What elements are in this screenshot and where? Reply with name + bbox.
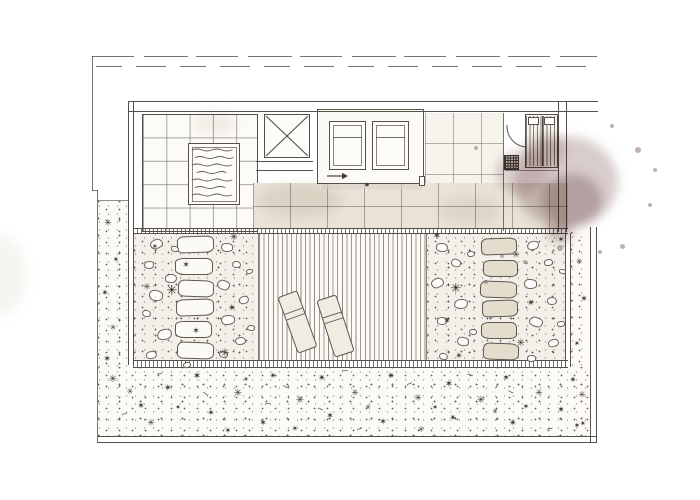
- grass-squiggle-symbol: ~: [341, 368, 349, 377]
- pebble: [141, 309, 152, 318]
- plant-symbol: ✶: [445, 380, 453, 390]
- pebble: [528, 315, 544, 328]
- lounger-backrest-line: [287, 313, 305, 321]
- plant-symbol: ✶: [523, 403, 530, 411]
- pebble: [235, 337, 246, 345]
- plant-symbol: ✴: [574, 340, 581, 348]
- plant-symbol: ✶: [193, 372, 201, 382]
- plant-symbol: ✳: [414, 395, 422, 404]
- plant-symbol: ✳: [451, 283, 462, 296]
- plant-symbol: ✶: [379, 419, 387, 428]
- plant-symbol: ✳: [517, 339, 525, 349]
- plant-symbol: ✴: [292, 425, 299, 433]
- plant-symbol: ✶: [557, 407, 565, 416]
- pebble: [145, 350, 157, 359]
- pebble: [216, 278, 231, 291]
- plant-symbol: ✴: [580, 420, 587, 428]
- grass-squiggle-symbol: ~: [280, 382, 290, 393]
- plant-symbol: ✶: [225, 427, 232, 435]
- stain-spatter-dot: [620, 244, 625, 249]
- grass-squiggle-symbol: ~: [199, 389, 210, 401]
- scatter-layer: ✳✶✳✳✴✶✳✴✶✳✳✴✶✳✴✶✳✶✴✳✶✳✶✴✳✶✳✶✴✳✶✴✳✶✴✳✶✴✳✶…: [0, 0, 700, 500]
- plant-symbol: ✴: [449, 415, 457, 424]
- pebble: [453, 298, 468, 310]
- stepping-stone: [178, 279, 215, 297]
- pebble: [220, 314, 235, 326]
- pebble: [558, 268, 566, 275]
- stepping-stone: [483, 260, 518, 277]
- plant-symbol: ✶: [558, 236, 565, 244]
- plant-symbol: ✶: [443, 318, 451, 327]
- plant-symbol: ✴: [527, 299, 535, 309]
- grass-squiggle-symbol: ~: [155, 370, 165, 381]
- pebble: [435, 242, 448, 253]
- plant-symbol: ✳: [220, 348, 229, 359]
- plant-symbol: ✳: [104, 220, 112, 229]
- plant-symbol: ✶: [103, 356, 111, 365]
- plant-symbol: ✶: [326, 413, 334, 422]
- plant-symbol: ✴: [387, 372, 395, 382]
- plant-symbol: ✳: [477, 396, 485, 406]
- pebble: [546, 296, 557, 305]
- grass-squiggle-symbol: ~: [404, 379, 415, 391]
- plant-symbol: ✳: [147, 420, 155, 429]
- plant-symbol: ✳: [365, 405, 371, 412]
- stain-spatter-dot: [635, 147, 641, 153]
- stepping-stone: [481, 322, 517, 339]
- plant-symbol: ✴: [509, 419, 517, 429]
- pebble: [232, 260, 242, 268]
- plant-symbol: ✳: [576, 258, 583, 266]
- plant-symbol: ✶: [580, 296, 588, 305]
- plant-symbol: ✳: [127, 388, 134, 396]
- plant-symbol: ✴: [455, 353, 463, 362]
- plant-symbol: ✳: [109, 375, 117, 385]
- stain-spatter-dot: [598, 250, 602, 254]
- stepping-stone: [482, 299, 519, 317]
- sun-lounger: [316, 294, 355, 358]
- pebble: [238, 295, 250, 305]
- stain-spatter-dot: [484, 280, 487, 283]
- plant-symbol: ✳: [418, 426, 425, 434]
- plant-symbol: ✴: [569, 377, 577, 386]
- stepping-stone: [483, 342, 520, 360]
- sun-lounger: [277, 290, 317, 354]
- pebble: [156, 327, 173, 342]
- plant-symbol: ✶: [433, 232, 441, 242]
- pebble: [450, 258, 462, 268]
- pebble: [527, 354, 537, 362]
- plant-symbol: ✶: [192, 328, 200, 337]
- plant-symbol: ✶: [137, 403, 145, 412]
- stain-spatter-dot: [523, 260, 527, 264]
- plant-symbol: ✳: [230, 233, 238, 243]
- plant-symbol: ✴: [207, 410, 215, 419]
- pebble: [469, 328, 478, 335]
- lounger-backrest-line: [325, 318, 343, 325]
- plant-symbol: ✳: [234, 389, 242, 399]
- plant-symbol: ✳: [167, 285, 178, 298]
- plant-symbol: ✳: [351, 390, 359, 399]
- plant-symbol: ✶: [432, 405, 438, 412]
- pebble: [221, 243, 233, 252]
- plant-symbol: ✴: [101, 290, 109, 299]
- stepping-stone: [177, 235, 215, 253]
- grass-squiggle-symbol: ~: [120, 409, 130, 420]
- plant-symbol: ✴: [243, 377, 249, 384]
- pebble: [524, 279, 537, 289]
- plant-symbol: ✶: [259, 420, 267, 429]
- plant-symbol: ✴: [269, 373, 277, 382]
- pebble: [467, 251, 475, 257]
- plant-symbol: ✴: [164, 384, 172, 394]
- pebble: [430, 276, 445, 289]
- pebble: [182, 361, 191, 369]
- plant-symbol: ✳: [296, 396, 304, 406]
- plant-symbol: ✳: [578, 392, 586, 401]
- plant-symbol: ✶: [113, 256, 120, 264]
- pebble: [547, 338, 560, 349]
- stain-spatter-dot: [557, 245, 563, 251]
- plant-symbol: ✶: [502, 375, 510, 384]
- grass-squiggle-symbol: ~: [263, 400, 272, 410]
- plant-symbol: ✳: [143, 284, 151, 293]
- plant-symbol: ✳: [110, 324, 117, 332]
- plant-symbol: ✳: [535, 390, 543, 399]
- plant-symbol: ✳: [512, 252, 520, 261]
- plant-symbol: ✴: [152, 243, 159, 251]
- plant-symbol: ✶: [182, 262, 190, 271]
- pebble: [165, 274, 177, 283]
- pebble: [247, 325, 255, 331]
- floor-plan-canvas: ✳✶✳✳✴✶✳✴✶✳✳✴✶✳✴✶✳✶✴✳✶✳✶✴✳✶✳✶✴✳✶✴✳✶✴✳✶✴✳✶…: [0, 0, 700, 500]
- stepping-stone: [175, 258, 213, 275]
- pebble: [246, 269, 254, 275]
- grass-squiggle-symbol: ~: [315, 405, 325, 416]
- plant-symbol: ✳: [492, 409, 498, 416]
- grass-squiggle-symbol: ~: [355, 424, 366, 435]
- grass-squiggle-symbol: ~: [505, 387, 516, 398]
- stain-spatter-dot: [474, 146, 478, 150]
- pebble: [456, 336, 469, 347]
- stepping-stone: [177, 341, 215, 359]
- plant-symbol: ✴: [318, 374, 326, 384]
- stain-spatter-dot: [500, 254, 504, 258]
- grass-squiggle-symbol: ~: [546, 425, 555, 435]
- stain-spatter-dot: [653, 168, 657, 172]
- plant-symbol: ✴: [228, 304, 236, 314]
- stain-spatter-dot: [648, 203, 652, 207]
- stepping-stone: [176, 298, 215, 316]
- pebble: [438, 352, 449, 361]
- plant-symbol: ✶: [175, 405, 181, 412]
- pebble: [526, 240, 540, 252]
- stain-spatter-dot: [610, 124, 614, 128]
- pebble: [544, 258, 554, 266]
- pebble: [143, 260, 154, 269]
- grass-squiggle-symbol: ~: [466, 371, 475, 381]
- pebble: [556, 320, 565, 328]
